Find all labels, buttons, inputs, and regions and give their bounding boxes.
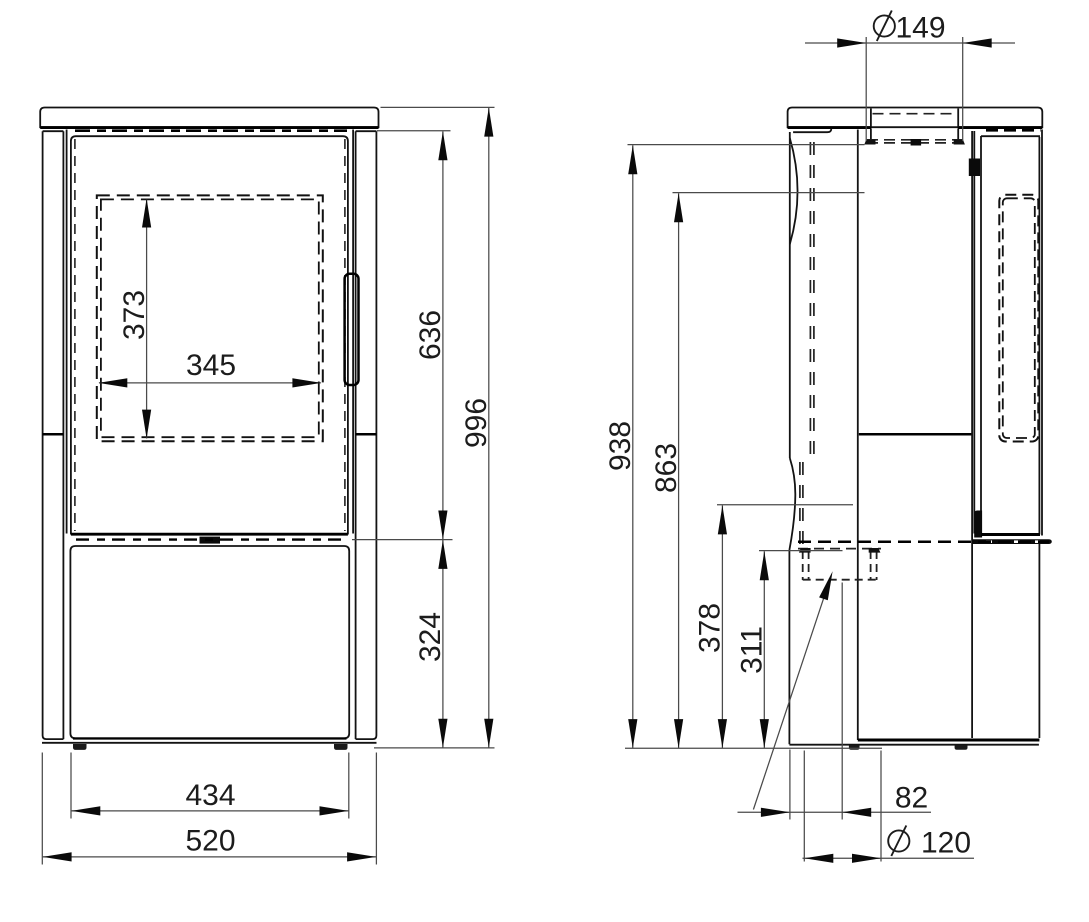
svg-text:636: 636 xyxy=(414,310,447,360)
svg-text:434: 434 xyxy=(185,779,235,812)
svg-text:324: 324 xyxy=(414,612,447,662)
svg-text:996: 996 xyxy=(460,398,493,448)
svg-text:938: 938 xyxy=(604,421,637,471)
svg-text:520: 520 xyxy=(185,825,235,858)
svg-text:82: 82 xyxy=(895,782,928,815)
svg-text:378: 378 xyxy=(694,603,727,653)
svg-text:863: 863 xyxy=(650,443,683,493)
svg-text:149: 149 xyxy=(895,12,945,45)
svg-text:311: 311 xyxy=(736,626,769,674)
svg-text:373: 373 xyxy=(118,290,151,340)
svg-text:345: 345 xyxy=(186,349,236,382)
svg-text:120: 120 xyxy=(921,827,971,860)
